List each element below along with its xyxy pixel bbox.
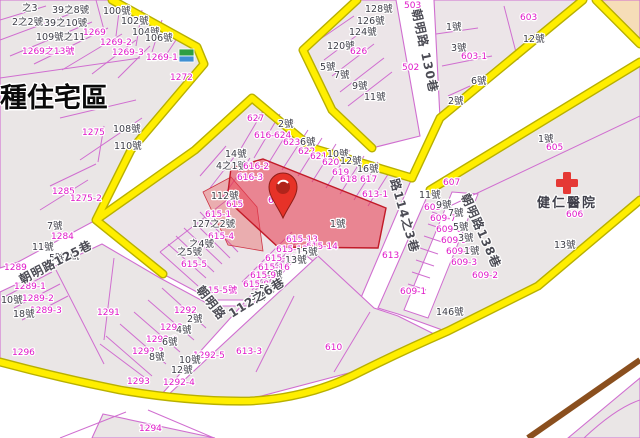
- parcel-number-label: 603-1: [461, 52, 487, 62]
- house-number-label: 124號: [349, 26, 377, 38]
- house-number-label: 110號: [114, 140, 142, 152]
- parcel-number-label: 502: [402, 63, 419, 73]
- house-number-label: 128號: [365, 3, 393, 15]
- house-number-label: 10號: [1, 294, 23, 306]
- house-number-label: 6號: [471, 75, 487, 87]
- house-number-label: 7號: [334, 69, 350, 81]
- house-number-label: 39之8號: [52, 4, 90, 16]
- parcel-number-label: 609-3: [451, 258, 477, 268]
- parcel-number-label: 1289-2: [22, 294, 54, 304]
- house-number-label: 12號: [171, 364, 193, 376]
- house-number-label: 2之2號: [12, 16, 44, 28]
- house-number-label: 2號: [448, 95, 464, 107]
- house-number-label: 7號: [448, 207, 464, 219]
- cadastral-map-viewport[interactable]: 之339之8號100號2之2號39之10號102號104號109號之111269…: [0, 0, 640, 438]
- parcel-number-label: 617: [360, 175, 377, 185]
- house-number-label: 126號: [357, 15, 385, 27]
- parcel-number-label: 1292-4: [163, 378, 195, 388]
- house-number-label: 11號: [32, 241, 54, 253]
- house-number-label: 39之10號: [44, 17, 88, 29]
- parcel-number-label: 627: [247, 114, 264, 124]
- house-number-label: 11號: [364, 91, 386, 103]
- house-number-label: 5號: [453, 221, 469, 233]
- parcel-number-label: 1269-2: [100, 38, 132, 48]
- parcel-number-label: 1294: [139, 424, 162, 434]
- house-number-label: 146號: [436, 306, 464, 318]
- parcel-number-label: 618: [340, 175, 357, 185]
- zone-label: 種住宅區: [0, 82, 108, 114]
- parcel-number-label: 1269-3: [112, 48, 144, 58]
- house-number-label: 1號: [464, 245, 480, 257]
- house-number-label: 12號: [523, 33, 545, 45]
- parcel-number-label: 1269之13號: [22, 45, 74, 57]
- parcel-number-label: 603: [520, 13, 537, 23]
- house-number-label: 8號: [149, 351, 165, 363]
- house-number-label: 16號: [357, 163, 379, 175]
- house-number-label: 4號: [176, 324, 192, 336]
- poi-icon: [179, 49, 194, 62]
- house-number-label: 之5號: [177, 246, 203, 258]
- parcel-number-label: 616-2: [243, 162, 269, 172]
- house-number-label: 109號之11: [36, 31, 85, 43]
- parcel-number-label: 620: [322, 158, 339, 168]
- cadastral-map[interactable]: 之339之8號100號2之2號39之10號102號104號109號之111269…: [0, 0, 640, 438]
- parcel-number-label: 613: [382, 251, 399, 261]
- parcel-number-label: 1284: [51, 232, 74, 242]
- house-number-label: 102號: [121, 15, 149, 27]
- parcel-number-label: 1275: [82, 128, 105, 138]
- parcel-number-label: 615: [226, 200, 243, 210]
- parcel-number-label: 1269: [83, 28, 106, 38]
- house-number-label: 1號: [330, 218, 346, 230]
- parcel-number-label: 1293: [127, 377, 150, 387]
- house-number-label: 127之2號: [192, 218, 236, 230]
- parcel-number-label: 607: [443, 178, 460, 188]
- house-number-label: 3號: [458, 232, 474, 244]
- parcel-number-label: 1269-1: [146, 53, 178, 63]
- parcel-number-label: 610: [325, 343, 342, 353]
- house-number-label: 2號: [278, 118, 294, 130]
- parcel-number-label: 615-5: [181, 260, 207, 270]
- parcel-number-label: 626: [350, 47, 367, 57]
- parcel-number-label: 605: [546, 143, 563, 153]
- parcel-number-label: 613-1: [362, 190, 388, 200]
- house-number-label: 18號: [13, 308, 35, 320]
- house-number-label: 106號: [145, 32, 173, 44]
- parcel-number-label: 609-2: [472, 271, 498, 281]
- house-number-label: 6號: [162, 336, 178, 348]
- parcel-number-label: 606: [566, 210, 583, 220]
- house-number-label: 1號: [446, 21, 462, 33]
- parcel-number-label: 613-3: [236, 347, 262, 357]
- house-number-label: 7號: [47, 220, 63, 232]
- house-number-label: 108號: [113, 123, 141, 135]
- house-number-label: 9號: [352, 80, 368, 92]
- parcel-number-label: 1275-2: [70, 194, 102, 204]
- parcel-number-label: 1289-1: [14, 282, 46, 292]
- parcel-number-label: 616-3: [237, 173, 263, 183]
- parcel-number-label: 1272: [170, 73, 193, 83]
- parcel-number-label: 1291: [97, 308, 120, 318]
- parcel-number-label: 609-1: [400, 287, 426, 297]
- house-number-label: 之3: [22, 2, 38, 14]
- parcel-number-label: 1289-3: [30, 306, 62, 316]
- house-number-label: 13號: [554, 239, 576, 251]
- parcel-number-label: 1296: [12, 348, 35, 358]
- hospital-name-label: 健仁醫院: [537, 195, 597, 211]
- house-number-label: 14號: [225, 148, 247, 160]
